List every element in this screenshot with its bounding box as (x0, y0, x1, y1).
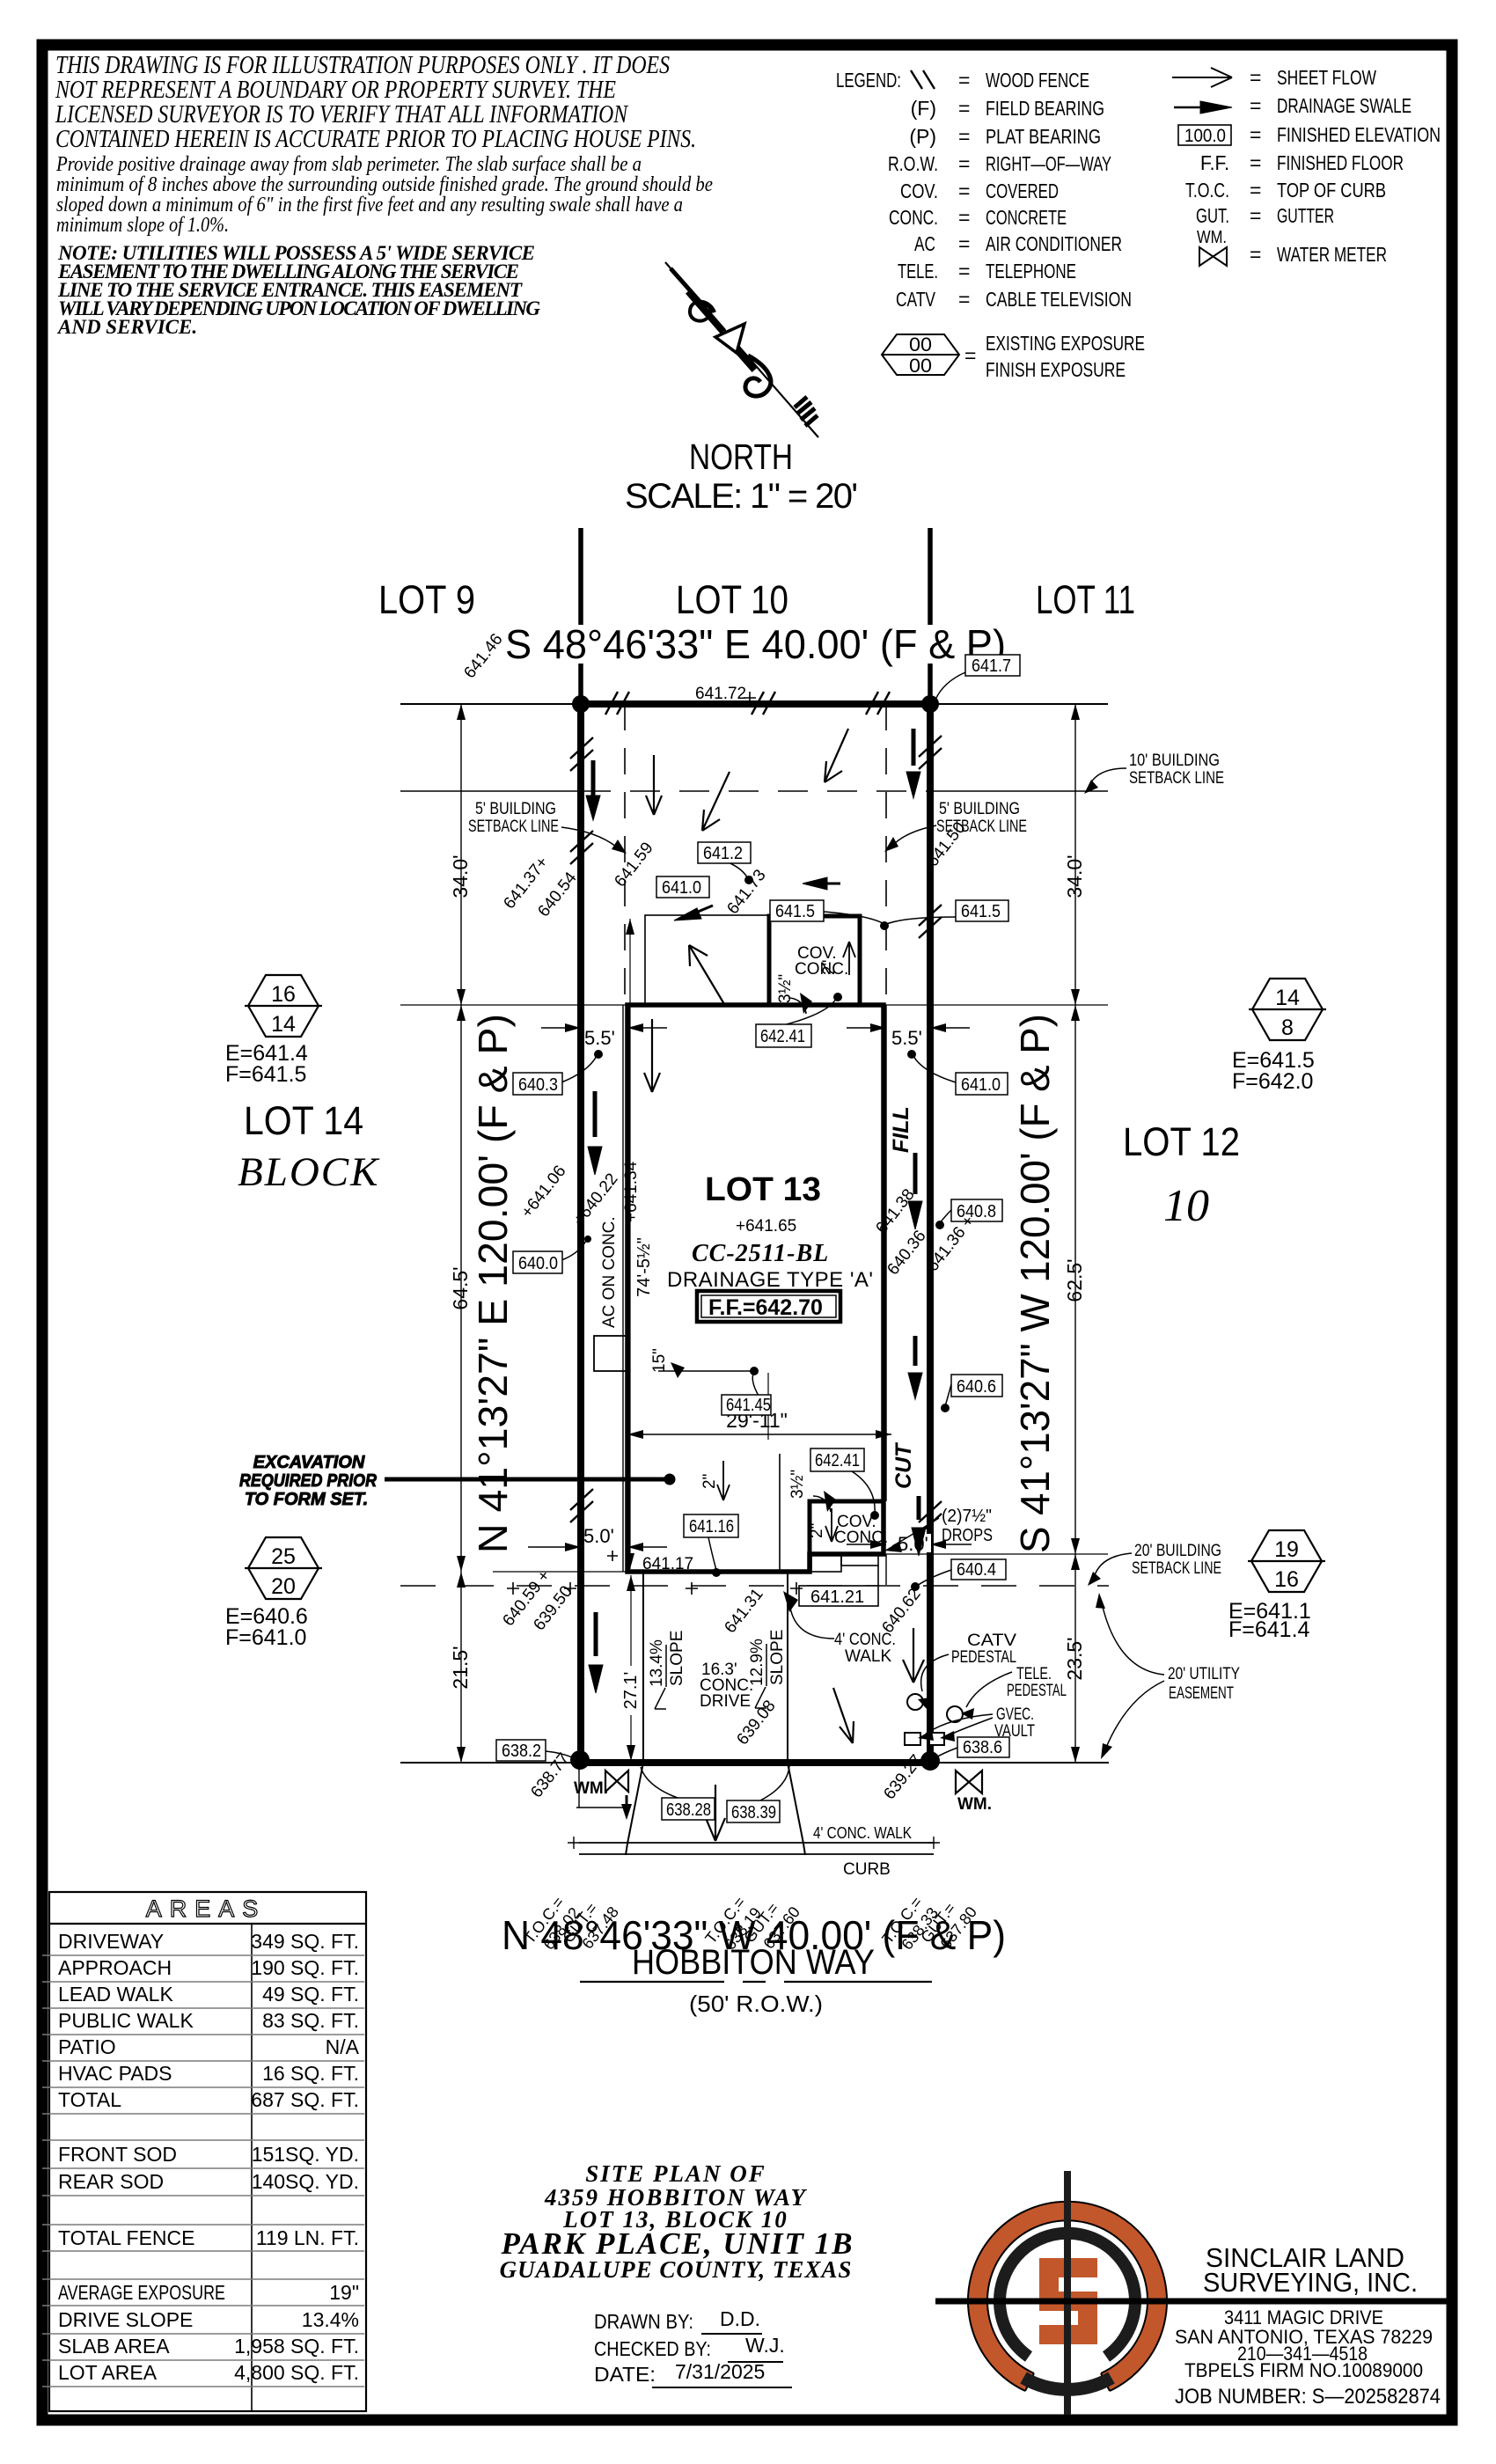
svg-text:CONC.: CONC. (889, 206, 938, 229)
svg-text:(F): (F) (911, 97, 936, 120)
svg-text:REQUIRED PRIOR: REQUIRED PRIOR (239, 1471, 377, 1491)
svg-text:PEDESTAL: PEDESTAL (1007, 1682, 1067, 1700)
svg-text:WM.: WM. (1197, 228, 1227, 247)
svg-text:64.5': 64.5' (449, 1266, 472, 1309)
svg-text:PLAT BEARING: PLAT BEARING (986, 125, 1101, 148)
svg-text:21.5': 21.5' (449, 1646, 472, 1689)
svg-text:FINISHED ELEVATION: FINISHED ELEVATION (1277, 123, 1441, 146)
svg-text:COV.: COV. (900, 180, 938, 202)
svg-text:DRIVE SLOPE: DRIVE SLOPE (58, 2308, 193, 2331)
svg-text:641.16: 641.16 (689, 1517, 734, 1536)
svg-text:=: = (958, 180, 970, 202)
svg-text:SETBACK LINE: SETBACK LINE (468, 818, 559, 836)
svg-text:638.2: 638.2 (502, 1742, 541, 1761)
svg-text:SETBACK LINE: SETBACK LINE (1132, 1559, 1221, 1578)
svg-text:638.28: 638.28 (666, 1800, 711, 1820)
svg-text:100.0: 100.0 (1184, 126, 1226, 146)
svg-text:640.3: 640.3 (518, 1075, 558, 1095)
svg-text:SCALE: 1" = 20': SCALE: 1" = 20' (625, 477, 858, 516)
svg-text:WOOD FENCE: WOOD FENCE (986, 69, 1089, 92)
svg-text:27.1': 27.1' (621, 1672, 641, 1710)
svg-text:641.72: 641.72 (695, 685, 746, 703)
svg-text:FILL: FILL (889, 1106, 913, 1153)
svg-text:=: = (958, 152, 970, 175)
svg-text:AVERAGE EXPOSURE: AVERAGE EXPOSURE (58, 2281, 225, 2304)
svg-text:=: = (1250, 66, 1261, 89)
svg-text:DRAINAGE TYPE 'A': DRAINAGE TYPE 'A' (667, 1268, 873, 1292)
svg-text:10' BUILDING: 10' BUILDING (1129, 752, 1220, 770)
svg-text:SLOPE: SLOPE (668, 1631, 686, 1686)
svg-text:641.0: 641.0 (961, 1075, 1001, 1095)
svg-text:CONTAINED HEREIN IS ACCURATE P: CONTAINED HEREIN IS ACCURATE PRIOR TO PL… (55, 125, 696, 153)
svg-text:SITE PLAN OF: SITE PLAN OF (585, 2160, 766, 2187)
svg-text:83 SQ. FT.: 83 SQ. FT. (262, 2009, 359, 2032)
svg-text:LOT AREA: LOT AREA (58, 2361, 158, 2384)
svg-text:5' BUILDING: 5' BUILDING (939, 800, 1020, 818)
svg-text:2": 2" (700, 1474, 719, 1489)
svg-text:16: 16 (271, 982, 296, 1007)
svg-text:TOP OF CURB: TOP OF CURB (1277, 179, 1386, 202)
svg-text:10: 10 (1163, 1181, 1209, 1231)
svg-text:(50' R.O.W.): (50' R.O.W.) (689, 1991, 823, 2017)
svg-text:=: = (958, 97, 970, 120)
svg-text:5.5': 5.5' (584, 1027, 615, 1049)
svg-text:15": 15" (650, 1348, 669, 1373)
svg-text:WM.: WM. (957, 1795, 992, 1814)
svg-text:190 SQ. FT.: 190 SQ. FT. (251, 1956, 359, 1979)
svg-text:638.39: 638.39 (731, 1803, 776, 1822)
svg-text:EXCAVATION: EXCAVATION (253, 1453, 365, 1472)
svg-text:641.2: 641.2 (703, 844, 743, 863)
svg-text:=: = (958, 232, 970, 255)
svg-text:TELE.: TELE. (1016, 1665, 1052, 1683)
svg-text:20' BUILDING: 20' BUILDING (1134, 1542, 1221, 1560)
svg-text:+641.65: +641.65 (736, 1217, 796, 1236)
svg-text:=: = (964, 344, 976, 367)
svg-text:74'-5½": 74'-5½" (634, 1237, 654, 1297)
svg-text:SETBACK LINE: SETBACK LINE (936, 818, 1027, 836)
svg-text:49 SQ. FT.: 49 SQ. FT. (262, 1983, 359, 2006)
svg-text:TO FORM SET.: TO FORM SET. (245, 1490, 368, 1509)
svg-text:WATER METER: WATER METER (1277, 243, 1387, 266)
svg-text:AC: AC (914, 232, 935, 255)
svg-text:APPROACH: APPROACH (58, 1956, 172, 1979)
svg-text:CATV: CATV (967, 1632, 1016, 1650)
svg-text:DRIVE: DRIVE (700, 1692, 751, 1711)
svg-text:GUT.: GUT. (1196, 204, 1229, 227)
svg-text:1,958 SQ. FT.: 1,958 SQ. FT. (234, 2335, 359, 2358)
svg-text:=: = (958, 69, 970, 92)
svg-text:DRAWN BY:: DRAWN BY: (594, 2310, 693, 2333)
svg-text:642.41: 642.41 (760, 1027, 805, 1046)
svg-text:RIGHT—OF—WAY: RIGHT—OF—WAY (986, 152, 1111, 175)
svg-text:LEGEND:: LEGEND: (836, 69, 901, 92)
svg-text:DROPS: DROPS (942, 1526, 993, 1545)
svg-text:N 41°13'27" E 120.00' (F & P): N 41°13'27" E 120.00' (F & P) (470, 1014, 516, 1553)
svg-text:638.6: 638.6 (963, 1738, 1002, 1757)
svg-text:=: = (1250, 243, 1261, 266)
svg-text:WALK: WALK (845, 1647, 891, 1666)
svg-text:GUADALUPE COUNTY, TEXAS: GUADALUPE COUNTY, TEXAS (500, 2256, 853, 2283)
svg-text:25: 25 (271, 1544, 296, 1569)
svg-text:NORTH: NORTH (689, 436, 793, 477)
svg-text:14: 14 (271, 1012, 296, 1037)
svg-text:TELE.: TELE. (898, 260, 938, 282)
svg-text:SETBACK LINE: SETBACK LINE (1129, 769, 1224, 788)
svg-text:CURB: CURB (843, 1860, 891, 1879)
svg-text:SURVEYING, INC.: SURVEYING, INC. (1203, 2267, 1418, 2298)
svg-text:F=641.0: F=641.0 (225, 1625, 306, 1650)
svg-text:4,800 SQ. FT.: 4,800 SQ. FT. (234, 2361, 359, 2384)
svg-text:CC-2511-BL: CC-2511-BL (692, 1240, 829, 1267)
svg-text:8: 8 (1281, 1016, 1294, 1040)
svg-text:BLOCK: BLOCK (238, 1149, 380, 1195)
svg-text:642.41: 642.41 (815, 1451, 860, 1470)
svg-text:SHEET FLOW: SHEET FLOW (1277, 66, 1376, 89)
svg-text:F=641.5: F=641.5 (225, 1062, 306, 1087)
svg-text:5' BUILDING: 5' BUILDING (475, 800, 556, 818)
svg-text:FINISH EXPOSURE: FINISH EXPOSURE (986, 358, 1126, 381)
svg-text:=: = (958, 125, 970, 148)
svg-text:AC ON CONC.: AC ON CONC. (600, 1216, 619, 1328)
svg-text:140SQ. YD.: 140SQ. YD. (252, 2170, 359, 2193)
svg-text:COVERED: COVERED (986, 180, 1059, 202)
svg-text:20' UTILITY: 20' UTILITY (1168, 1665, 1240, 1683)
svg-text:=: = (1250, 151, 1261, 174)
svg-text:(2)7½": (2)7½" (942, 1507, 992, 1526)
svg-text:LEAD WALK: LEAD WALK (58, 1983, 173, 2006)
svg-text:CONC.: CONC. (795, 960, 848, 979)
svg-text:FIELD BEARING: FIELD BEARING (986, 97, 1104, 120)
svg-text:LOT 13: LOT 13 (705, 1171, 821, 1208)
svg-text:=: = (1250, 179, 1261, 202)
svg-text:12.9%: 12.9% (748, 1639, 766, 1686)
svg-text:CUT: CUT (891, 1441, 916, 1489)
svg-text:EASEMENT: EASEMENT (1169, 1684, 1234, 1703)
svg-text:CONCRETE: CONCRETE (986, 206, 1067, 229)
svg-text:S 41°13'27" W 120.00' (F & P): S 41°13'27" W 120.00' (F & P) (1012, 1014, 1058, 1553)
svg-text:=: = (958, 288, 970, 311)
svg-text:W.J.: W.J. (745, 2334, 785, 2357)
svg-text:D.D.: D.D. (720, 2307, 760, 2330)
svg-text:19": 19" (329, 2281, 359, 2304)
svg-text:=: = (958, 260, 970, 282)
svg-text:HOBBITON WAY: HOBBITON WAY (632, 1943, 875, 1982)
svg-text:SLAB AREA: SLAB AREA (58, 2335, 170, 2358)
svg-text:13.4%: 13.4% (648, 1639, 666, 1687)
svg-text:=: = (1250, 204, 1261, 227)
svg-text:T.O.C.: T.O.C. (1185, 179, 1229, 202)
svg-text:LOT 9: LOT 9 (378, 577, 475, 622)
svg-text:=: = (1250, 123, 1261, 146)
svg-text:641.0: 641.0 (662, 878, 701, 898)
svg-text:641.5: 641.5 (775, 902, 815, 921)
svg-text:DRAINAGE SWALE: DRAINAGE SWALE (1277, 94, 1412, 117)
svg-text:DATE:: DATE: (594, 2363, 656, 2386)
svg-text:TBPELS FIRM NO.10089000: TBPELS FIRM NO.10089000 (1184, 2359, 1423, 2381)
svg-text:VAULT: VAULT (994, 1722, 1035, 1741)
svg-text:349 SQ. FT.: 349 SQ. FT. (251, 1930, 359, 1953)
svg-text:23.5': 23.5' (1063, 1637, 1086, 1680)
svg-text:641.17: 641.17 (642, 1555, 693, 1573)
svg-text:=: = (958, 206, 970, 229)
svg-text:F.F.=642.70: F.F.=642.70 (708, 1295, 823, 1320)
svg-text:7/31/2025: 7/31/2025 (675, 2360, 765, 2383)
svg-text:GVEC.: GVEC. (996, 1705, 1034, 1724)
svg-text:S 48°46'33" E 40.00' (F & P): S 48°46'33" E 40.00' (F & P) (505, 621, 1006, 667)
svg-text:34.0': 34.0' (1063, 854, 1086, 898)
svg-text:GUTTER: GUTTER (1277, 204, 1334, 227)
svg-text:AREAS: AREAS (146, 1896, 267, 1922)
svg-text:641.5: 641.5 (961, 902, 1001, 921)
svg-text:5.0': 5.0' (583, 1525, 614, 1547)
svg-text:00: 00 (909, 355, 932, 377)
svg-text:00: 00 (909, 334, 932, 356)
svg-text:FINISHED FLOOR: FINISHED FLOOR (1277, 151, 1404, 174)
svg-text:EXISTING EXPOSURE: EXISTING EXPOSURE (986, 332, 1145, 355)
svg-text:LOT 10: LOT 10 (676, 577, 788, 622)
svg-text:640.4: 640.4 (957, 1560, 996, 1580)
svg-text:641.45: 641.45 (726, 1396, 771, 1415)
svg-text:640.6: 640.6 (957, 1377, 996, 1397)
svg-text:3½": 3½" (788, 1470, 807, 1499)
svg-text:PUBLIC WALK: PUBLIC WALK (58, 2009, 194, 2032)
svg-text:2": 2" (808, 1523, 826, 1538)
svg-text:687 SQ. FT.: 687 SQ. FT. (251, 2088, 359, 2111)
svg-text:TOTAL: TOTAL (58, 2088, 121, 2111)
svg-text:151SQ. YD.: 151SQ. YD. (252, 2143, 359, 2166)
svg-text:R.O.W.: R.O.W. (888, 152, 938, 175)
svg-text:640.0: 640.0 (518, 1254, 558, 1273)
svg-text:LOT 12: LOT 12 (1123, 1119, 1240, 1164)
svg-text:CATV: CATV (896, 288, 935, 311)
svg-text:TOTAL FENCE: TOTAL FENCE (58, 2226, 195, 2249)
svg-text:AIR CONDITIONER: AIR CONDITIONER (986, 232, 1122, 255)
svg-text:N/A: N/A (326, 2035, 360, 2058)
svg-text:F=642.0: F=642.0 (1232, 1069, 1313, 1094)
svg-text:TELEPHONE: TELEPHONE (986, 260, 1076, 282)
svg-text:CONC.: CONC. (834, 1529, 888, 1547)
svg-text:PATIO: PATIO (58, 2035, 116, 2058)
svg-text:JOB NUMBER: S—202582874: JOB NUMBER: S—202582874 (1175, 2385, 1441, 2409)
svg-text:SLOPE: SLOPE (768, 1630, 787, 1685)
svg-text:641.7: 641.7 (972, 656, 1011, 676)
svg-text:PEDESTAL: PEDESTAL (951, 1648, 1016, 1667)
svg-text:641.21: 641.21 (810, 1588, 864, 1607)
svg-text:20: 20 (271, 1574, 296, 1599)
svg-text:AND SERVICE.: AND SERVICE. (56, 316, 197, 338)
svg-text:13.4%: 13.4% (302, 2308, 359, 2331)
svg-text:34.0': 34.0' (449, 854, 472, 898)
svg-text:DRIVEWAY: DRIVEWAY (58, 1930, 164, 1953)
svg-text:HVAC PADS: HVAC PADS (58, 2062, 172, 2085)
svg-text:16: 16 (1274, 1567, 1299, 1592)
svg-text:REAR SOD: REAR SOD (58, 2170, 164, 2193)
svg-text:14: 14 (1275, 986, 1300, 1010)
svg-text:62.5': 62.5' (1063, 1258, 1086, 1302)
svg-text:CABLE TELEVISION: CABLE TELEVISION (986, 288, 1132, 311)
svg-text:LOT 11: LOT 11 (1036, 577, 1135, 622)
svg-text:4' CONC.: 4' CONC. (834, 1631, 896, 1649)
svg-text:4' CONC. WALK: 4' CONC. WALK (813, 1824, 912, 1842)
svg-text:19: 19 (1274, 1537, 1299, 1562)
svg-text:119 LN. FT.: 119 LN. FT. (256, 2226, 359, 2249)
svg-text:minimum slope of 1.0%.: minimum slope of 1.0%. (56, 214, 229, 237)
svg-text:+641.34: +641.34 (622, 1161, 641, 1222)
svg-text:=: = (1250, 94, 1261, 117)
svg-text:5.5': 5.5' (891, 1027, 922, 1049)
svg-text:F=641.4: F=641.4 (1228, 1617, 1310, 1642)
svg-text:F.F.: F.F. (1200, 151, 1229, 174)
svg-text:16 SQ. FT.: 16 SQ. FT. (262, 2062, 359, 2085)
svg-text:CHECKED BY:: CHECKED BY: (594, 2337, 711, 2360)
svg-text:(P): (P) (909, 125, 936, 148)
svg-text:LOT 14: LOT 14 (244, 1098, 363, 1143)
svg-text:FRONT SOD: FRONT SOD (58, 2143, 177, 2166)
